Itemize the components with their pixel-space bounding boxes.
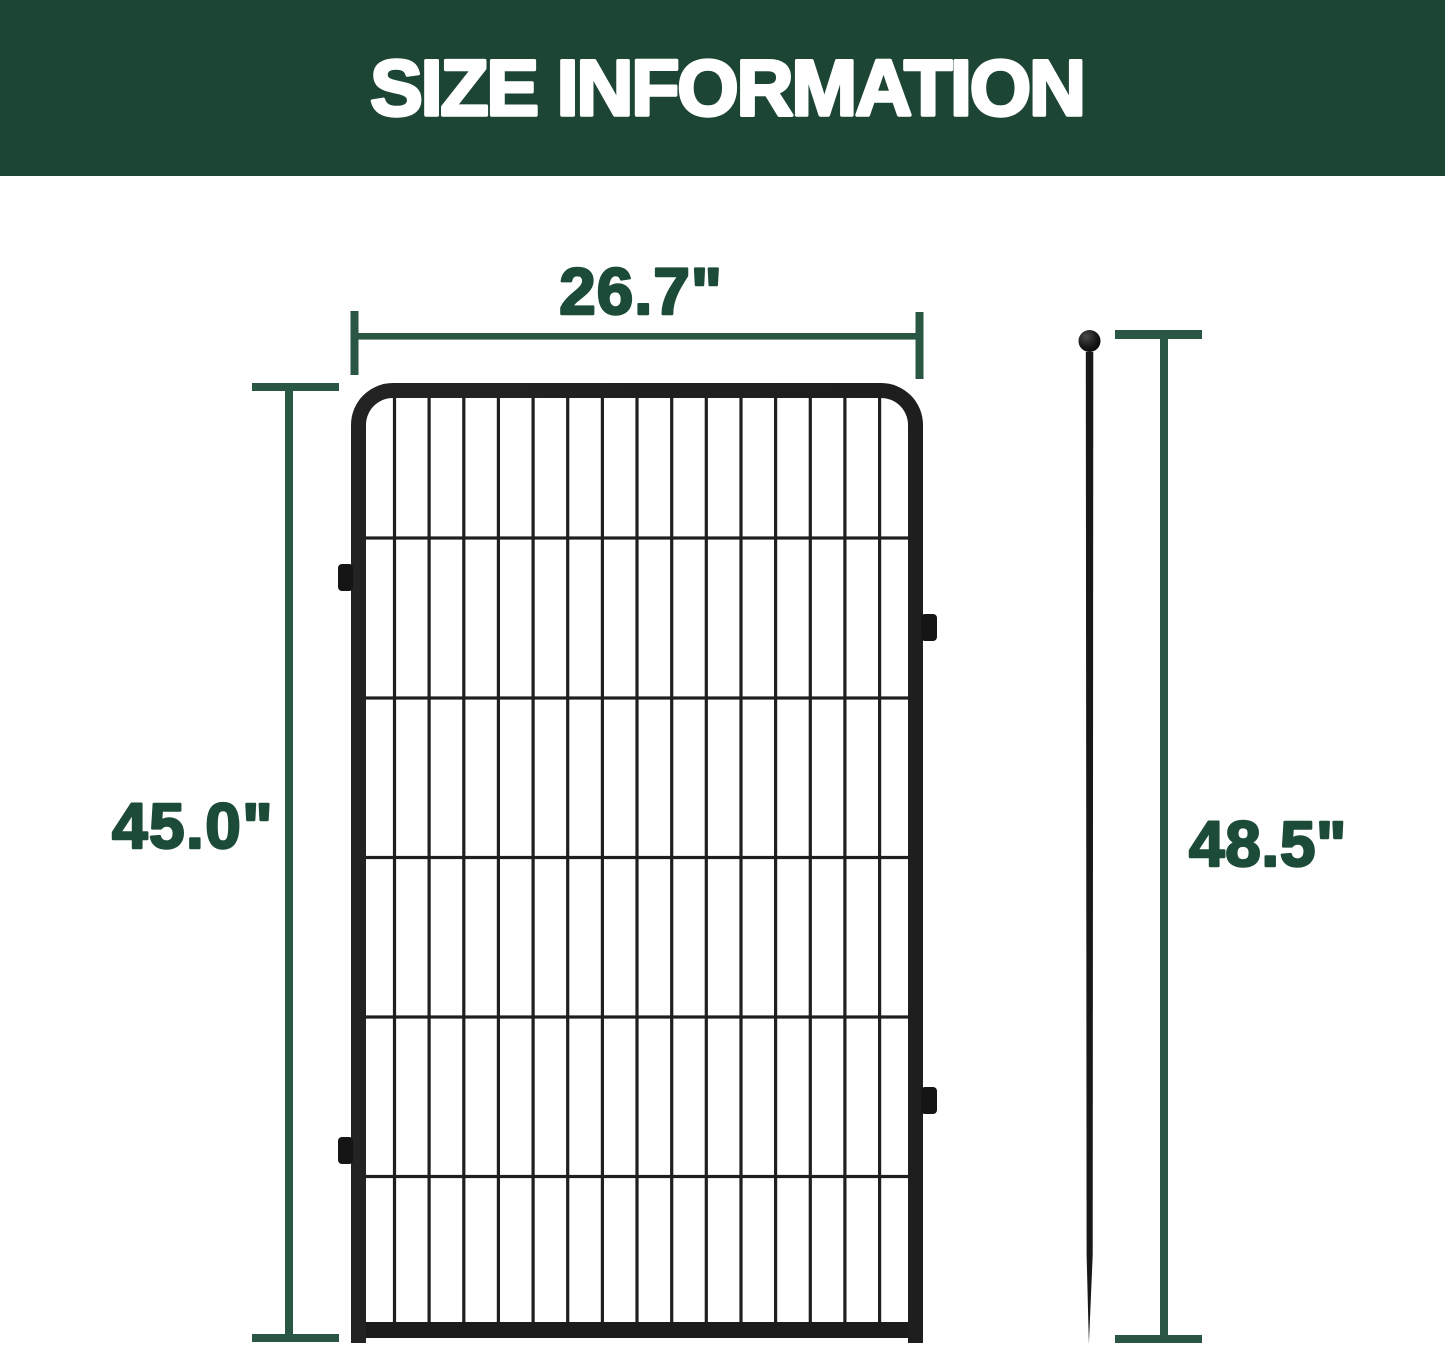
svg-text:26.7": 26.7" [559, 254, 723, 328]
svg-text:SIZE INFORMATION: SIZE INFORMATION [370, 43, 1084, 132]
svg-text:45.0": 45.0" [112, 790, 274, 862]
svg-text:48.5": 48.5" [1189, 808, 1347, 880]
